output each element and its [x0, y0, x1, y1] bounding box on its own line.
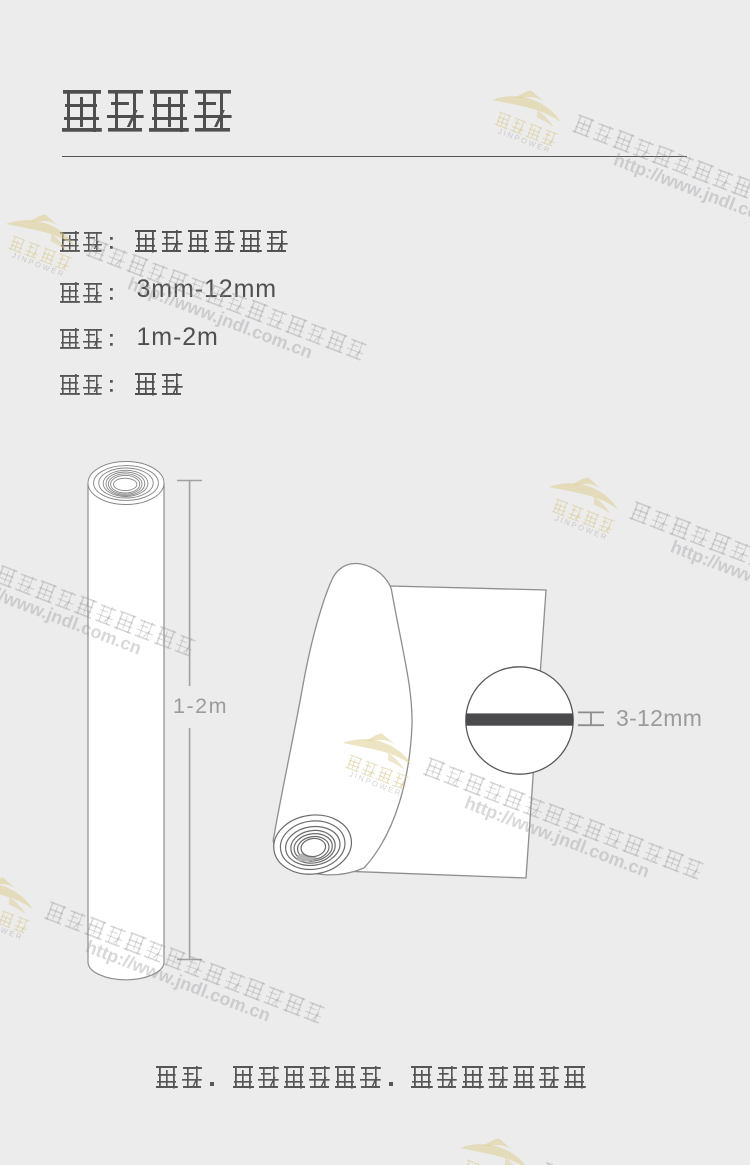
- svg-text:3-12mm: 3-12mm: [616, 705, 702, 731]
